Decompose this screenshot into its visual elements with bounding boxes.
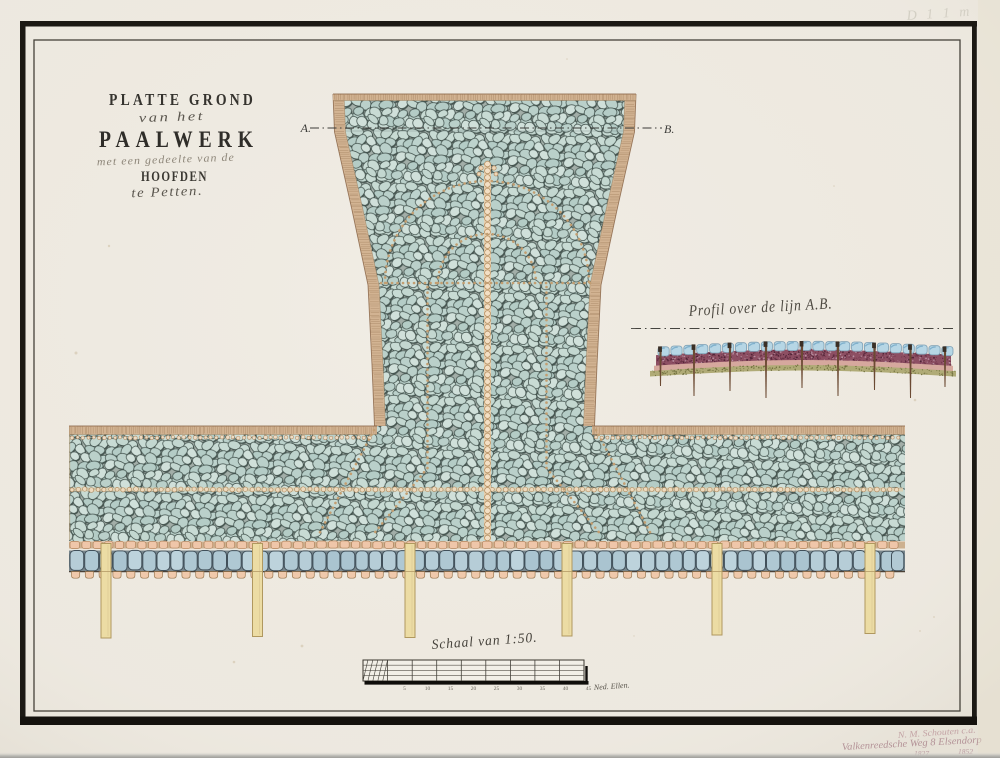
svg-text:40: 40 [563,686,569,692]
svg-text:PLATTE GROND: PLATTE GROND [109,90,256,109]
svg-text:45: 45 [586,686,592,692]
svg-text:te Petten.: te Petten. [131,183,203,201]
svg-text:30: 30 [517,686,523,692]
svg-text:PAALWERK: PAALWERK [99,127,259,152]
svg-text:A.: A. [300,121,311,135]
svg-text:B.: B. [664,122,674,136]
svg-text:van het: van het [139,108,205,125]
svg-text:25: 25 [494,686,500,692]
svg-text:5: 5 [403,686,406,692]
svg-text:35: 35 [540,686,546,692]
svg-text:15: 15 [448,686,454,692]
svg-text:10: 10 [425,686,431,692]
svg-text:20: 20 [471,686,477,692]
